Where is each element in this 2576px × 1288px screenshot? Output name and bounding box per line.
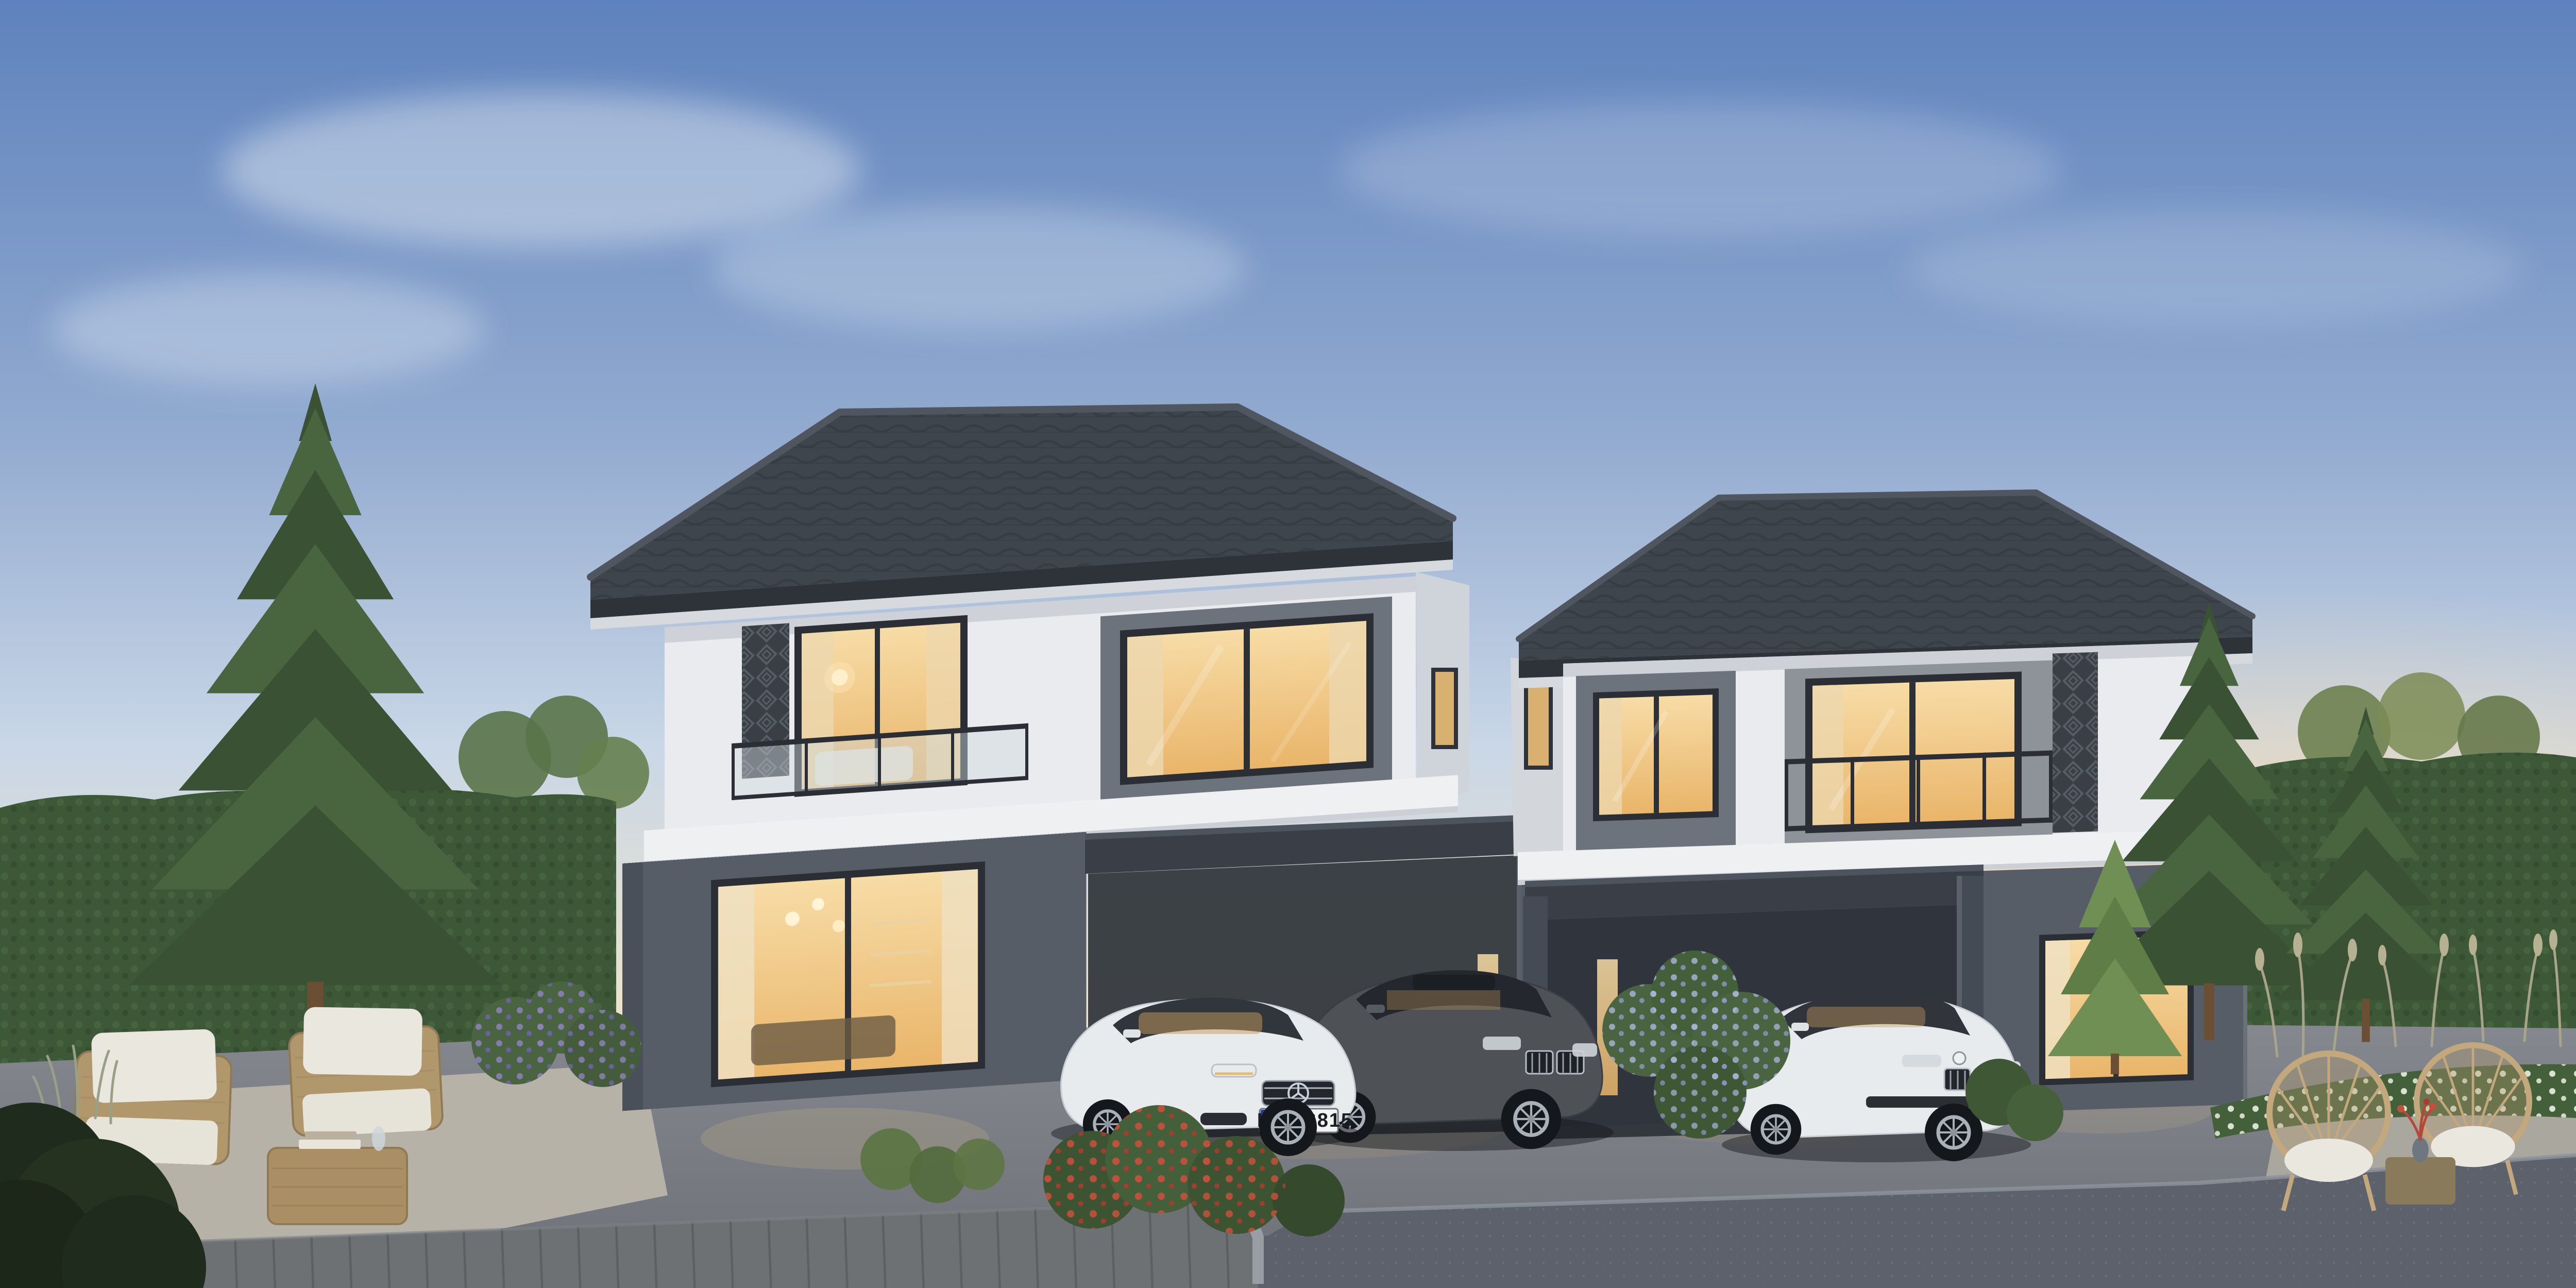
headlight [1902,1055,1941,1067]
left-ground-window [711,861,985,1087]
carafe [372,1126,385,1151]
air-intake [1200,1113,1247,1125]
right-balcony [1785,652,2098,845]
right-house-upper-wall [1563,642,2217,852]
chair-pillow [91,1029,217,1103]
bmw-roundel [1953,1052,1965,1064]
wheel [1751,1104,1802,1155]
chair-cushion [2284,1139,2373,1182]
chair-pillow [303,1007,422,1076]
books [299,1140,361,1149]
wheel [1501,1089,1561,1149]
headlight [1572,1043,1597,1057]
right-house-side-window [1526,675,1551,768]
side-mirror [1791,1023,1809,1031]
dusk-houses-rendering: D IN A 6815 [0,0,2576,1288]
left-house-side-window [1433,670,1456,747]
wicker-chair-right [287,1000,443,1138]
left-upper-window [1100,597,1392,806]
side-mirror [1123,1029,1141,1038]
chair-seat-cushion [302,1088,432,1137]
right-upper-window [1576,671,1736,852]
left-house-lower [622,832,1086,1111]
vase [2412,1138,2429,1162]
headlight [1483,1037,1521,1050]
side-mirror [1366,1005,1385,1013]
sunroof [1413,975,1495,990]
